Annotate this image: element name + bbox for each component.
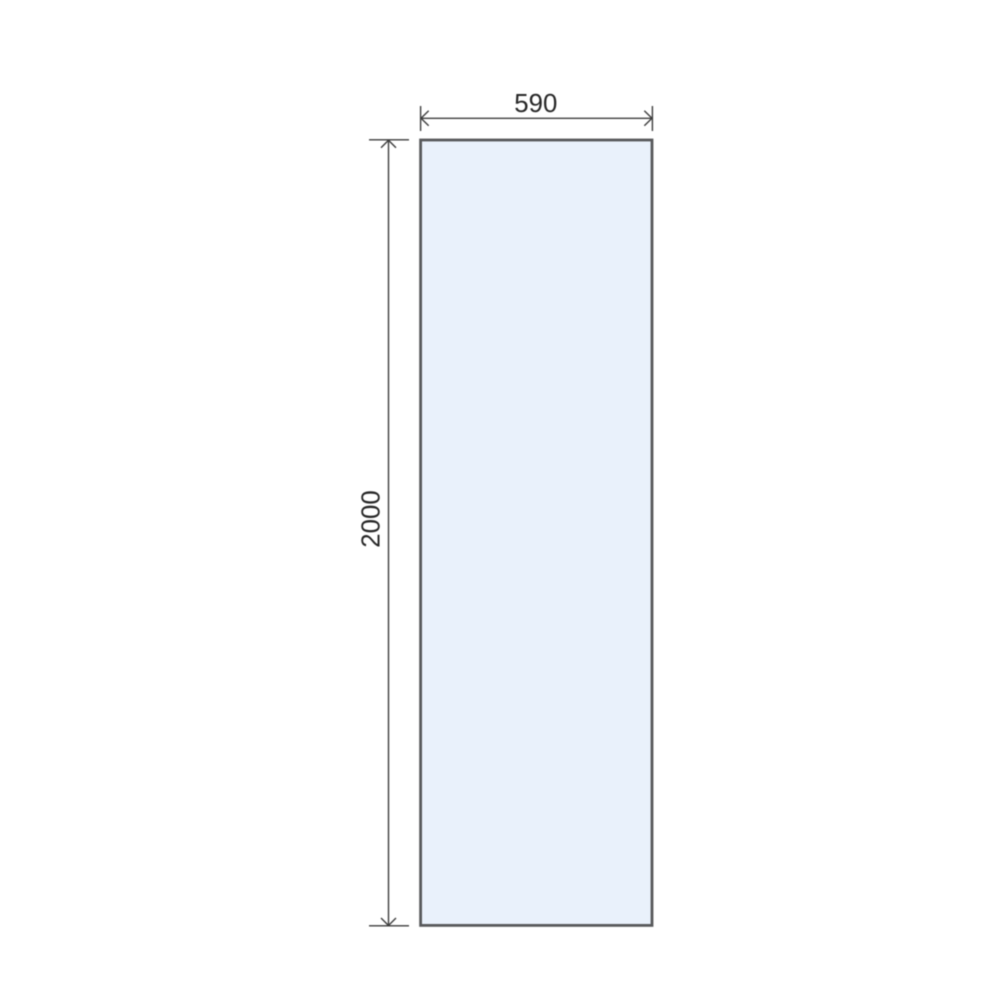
svg-text:2000: 2000 [358, 490, 386, 547]
svg-text:590: 590 [514, 90, 557, 118]
